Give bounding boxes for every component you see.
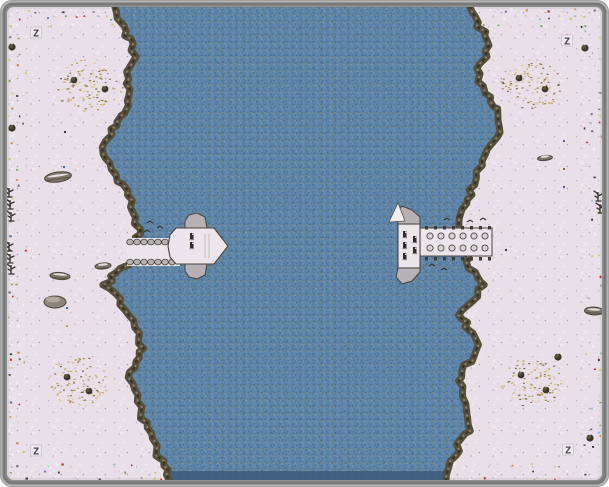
barrel — [438, 245, 444, 251]
marker-glyph: Z — [564, 37, 570, 48]
pier-right-platform[interactable] — [398, 224, 420, 268]
barrel — [471, 245, 477, 251]
barrel — [482, 233, 488, 239]
ground-speck — [505, 249, 507, 251]
barrel — [449, 245, 455, 251]
barrel — [427, 233, 433, 239]
ground-speck — [563, 140, 565, 142]
marker-glyph: Z — [33, 447, 39, 458]
game-map-viewport[interactable]: ZZZZ — [0, 0, 609, 487]
barrel — [482, 245, 488, 251]
map-marker[interactable]: Z — [562, 35, 573, 48]
ground-speck — [563, 168, 565, 170]
map-marker[interactable]: Z — [31, 27, 42, 40]
barrel — [427, 245, 433, 251]
map-content: ZZZZ — [5, 6, 604, 483]
barrel — [438, 233, 444, 239]
barrel — [449, 233, 455, 239]
barrel — [460, 233, 466, 239]
map-canvas: ZZZZ — [0, 0, 609, 487]
barrel — [460, 245, 466, 251]
marker-glyph: Z — [565, 446, 571, 457]
barrel — [471, 233, 477, 239]
ground-speck — [66, 307, 68, 309]
water-deep-band — [140, 471, 470, 480]
marker-glyph: Z — [33, 29, 39, 40]
ground-speck — [563, 186, 565, 188]
ground-speck — [66, 325, 68, 327]
map-marker[interactable]: Z — [31, 445, 42, 458]
ground-speck — [64, 131, 66, 133]
map-marker[interactable]: Z — [563, 444, 574, 457]
ground-speck — [63, 166, 65, 168]
rock — [44, 296, 66, 308]
